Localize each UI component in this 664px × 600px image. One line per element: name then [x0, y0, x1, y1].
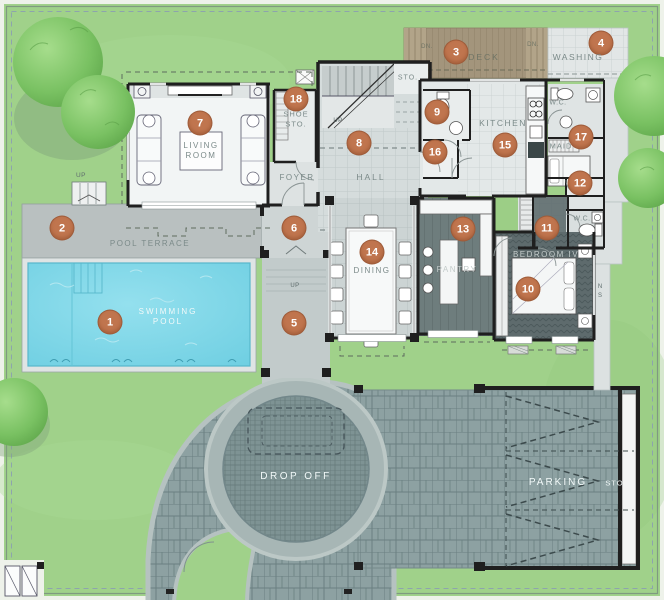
- room-label-up_a: UP: [76, 173, 86, 180]
- room-marker-m11: 11: [535, 216, 560, 241]
- room-label-maid: MAID: [550, 142, 573, 150]
- room-label-kitchen: KITCHEN: [479, 119, 527, 128]
- room-label-dining: DINING: [354, 267, 391, 275]
- room-label-pool_terrace: POOL TERRACE: [110, 240, 190, 248]
- room-label-ns_n: N: [598, 284, 602, 290]
- room-marker-m8: 8: [347, 131, 372, 156]
- room-label-swimming_line1: SWIMMING: [139, 308, 198, 316]
- room-marker-m13: 13: [451, 217, 476, 242]
- room-label-shoe1: SHOE: [283, 110, 308, 118]
- room-marker-m18: 18: [284, 87, 309, 112]
- room-label-ns_s: S: [598, 293, 602, 299]
- room-marker-m10: 10: [516, 277, 541, 302]
- room-marker-m5: 5: [282, 311, 307, 336]
- room-label-living1: LIVING: [183, 142, 218, 150]
- room-marker-m2: 2: [50, 216, 75, 241]
- room-label-shoe2: STO.: [285, 120, 306, 128]
- room-label-hall: HALL: [356, 173, 385, 182]
- room-marker-m9: 9: [425, 100, 450, 125]
- room-marker-m7: 7: [188, 111, 213, 136]
- labels-overlay: 123456789101112131415161718SWIMMINGPOOLP…: [0, 0, 664, 600]
- room-label-up_c: UP: [333, 118, 342, 124]
- room-label-washing: WASHING: [553, 53, 604, 62]
- room-label-living2: ROOM: [186, 152, 217, 160]
- room-label-wc_a: W.C.: [549, 100, 566, 107]
- room-label-dn_a: DN.: [421, 44, 433, 50]
- room-label-sto_parking: STO.: [605, 479, 626, 487]
- room-marker-m12: 12: [568, 171, 593, 196]
- room-marker-m3: 3: [444, 40, 469, 65]
- room-label-dn_b: DN.: [527, 42, 539, 48]
- room-marker-m6: 6: [282, 216, 307, 241]
- floor-plan: 123456789101112131415161718SWIMMINGPOOLP…: [0, 0, 664, 600]
- room-label-wc_b: W.C.: [573, 216, 590, 223]
- room-label-sto_stair: STO.: [398, 75, 418, 82]
- room-label-deck: DECK: [468, 53, 500, 62]
- room-marker-m15: 15: [493, 133, 518, 158]
- room-label-bedroom: BEDROOM IV: [513, 251, 579, 259]
- room-label-up_b: UP: [290, 283, 299, 289]
- room-marker-m16: 16: [423, 140, 448, 165]
- room-label-foyer: FOYER: [279, 174, 314, 182]
- room-label-pantry: PANTRY: [437, 266, 478, 274]
- room-marker-m14: 14: [360, 240, 385, 265]
- room-label-drop_off: DROP OFF: [260, 472, 331, 482]
- room-label-swimming_line2: POOL: [153, 318, 183, 326]
- room-label-parking: PARKING: [529, 478, 587, 488]
- room-marker-m1: 1: [98, 310, 123, 335]
